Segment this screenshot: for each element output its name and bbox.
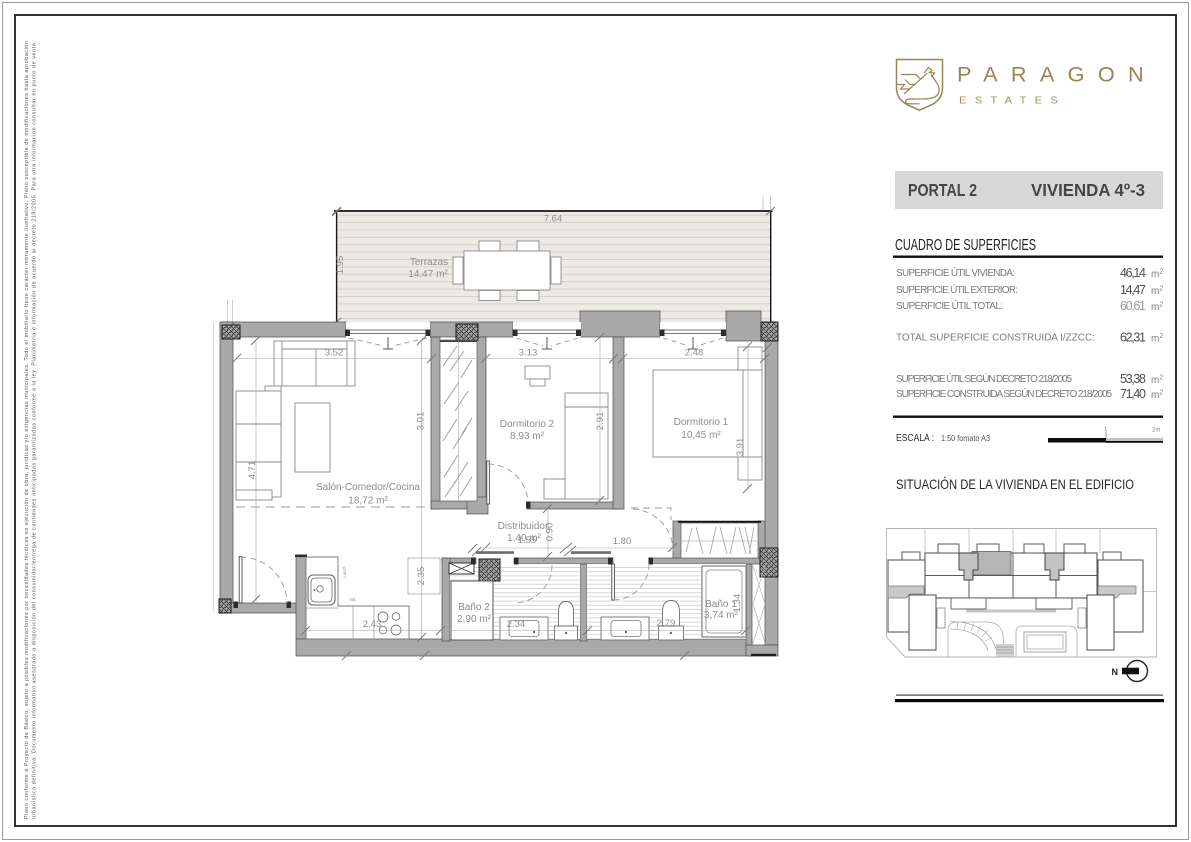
svg-text:14,47 m²: 14,47 m² bbox=[408, 269, 448, 280]
svg-text:4.71: 4.71 bbox=[247, 461, 258, 480]
svg-text:SUPERFICIE ÚTIL TOTAL:: SUPERFICIE ÚTIL TOTAL: bbox=[896, 299, 1003, 312]
svg-text:2.91: 2.91 bbox=[595, 412, 606, 431]
svg-text:46,14: 46,14 bbox=[1120, 266, 1146, 280]
svg-text:VIVIENDA 4º-3: VIVIENDA 4º-3 bbox=[1031, 180, 1145, 200]
svg-text:ESTATES: ESTATES bbox=[959, 95, 1066, 107]
svg-text:Lav.P.: Lav.P. bbox=[342, 566, 347, 578]
svg-text:PORTAL 2: PORTAL 2 bbox=[908, 180, 977, 200]
svg-text:SITUACIÓN DE LA VIVIENDA EN EL: SITUACIÓN DE LA VIVIENDA EN EL EDIFICIO bbox=[896, 477, 1134, 492]
svg-text:2.79: 2.79 bbox=[657, 618, 676, 629]
svg-text:SUPERFICIE ÚTIL VIVIENDA:: SUPERFICIE ÚTIL VIVIENDA: bbox=[896, 266, 1015, 279]
svg-text:Distribuidor: Distribuidor bbox=[498, 521, 549, 532]
svg-text:PARAGON: PARAGON bbox=[957, 63, 1157, 87]
svg-text:1,40 m²: 1,40 m² bbox=[507, 533, 542, 544]
svg-text:1.80: 1.80 bbox=[613, 536, 632, 547]
svg-text:7.64: 7.64 bbox=[544, 214, 563, 225]
svg-text:urbanística definitiva. Docume: urbanística definitiva. Documento inform… bbox=[32, 41, 38, 819]
svg-text:2.43: 2.43 bbox=[363, 619, 382, 630]
svg-text:2.48: 2.48 bbox=[685, 348, 704, 359]
svg-text:ESCALA :: ESCALA : bbox=[896, 433, 934, 444]
svg-text:Vitr.: Vitr. bbox=[349, 597, 357, 602]
svg-text:3.52: 3.52 bbox=[325, 348, 344, 359]
svg-text:71,40: 71,40 bbox=[1120, 387, 1146, 401]
svg-text:3.91: 3.91 bbox=[735, 438, 746, 457]
svg-text:SUPERFICIE ÚTIL EXTERIOR:: SUPERFICIE ÚTIL EXTERIOR: bbox=[896, 283, 1018, 296]
svg-text:Dormitorio 2: Dormitorio 2 bbox=[500, 419, 555, 430]
svg-text:10,45 m²: 10,45 m² bbox=[681, 430, 721, 441]
svg-text:TOTAL SUPERFICIE CONSTRUIDA I/: TOTAL SUPERFICIE CONSTRUIDA I/ZZCC: bbox=[896, 333, 1095, 344]
svg-text:Terrazas: Terrazas bbox=[410, 257, 448, 268]
svg-text:Dormitorio 1: Dormitorio 1 bbox=[674, 417, 729, 428]
svg-text:SUPERFICIE CONSTRUIDA SEGÚN DE: SUPERFICIE CONSTRUIDA SEGÚN DECRETO 218/… bbox=[896, 387, 1112, 400]
svg-text:3.13: 3.13 bbox=[519, 348, 538, 359]
svg-text:1.95: 1.95 bbox=[335, 256, 346, 275]
svg-text:18,72 m²: 18,72 m² bbox=[348, 496, 388, 507]
svg-text:Salón-Comedor/Cocina: Salón-Comedor/Cocina bbox=[316, 482, 420, 493]
svg-text:62,31: 62,31 bbox=[1120, 331, 1146, 345]
svg-text:N: N bbox=[1112, 667, 1119, 677]
svg-text:14,47: 14,47 bbox=[1120, 283, 1146, 297]
svg-text:1.34: 1.34 bbox=[732, 594, 743, 613]
svg-text:SUPERFICIE ÚTIL SEGÚN DECRETO: SUPERFICIE ÚTIL SEGÚN DECRETO 218/2005 bbox=[896, 372, 1072, 385]
svg-text:8,93 m²: 8,93 m² bbox=[510, 431, 545, 442]
svg-text:53,38: 53,38 bbox=[1120, 372, 1146, 386]
svg-text:2,90 m²: 2,90 m² bbox=[457, 614, 492, 625]
svg-text:Baño 2: Baño 2 bbox=[458, 602, 490, 613]
svg-text:2.34: 2.34 bbox=[507, 619, 526, 630]
svg-text:2m: 2m bbox=[1152, 428, 1160, 434]
svg-text:Plano conforme a Proyecto de B: Plano conforme a Proyecto de Básico, suj… bbox=[24, 41, 30, 819]
svg-text:60,61: 60,61 bbox=[1120, 299, 1146, 313]
svg-text:2.35: 2.35 bbox=[416, 567, 427, 586]
svg-text:3.01: 3.01 bbox=[416, 412, 427, 431]
svg-text:CUADRO DE SUPERFICIES: CUADRO DE SUPERFICIES bbox=[895, 237, 1036, 254]
svg-text:1:50 fomato A3: 1:50 fomato A3 bbox=[941, 433, 990, 443]
